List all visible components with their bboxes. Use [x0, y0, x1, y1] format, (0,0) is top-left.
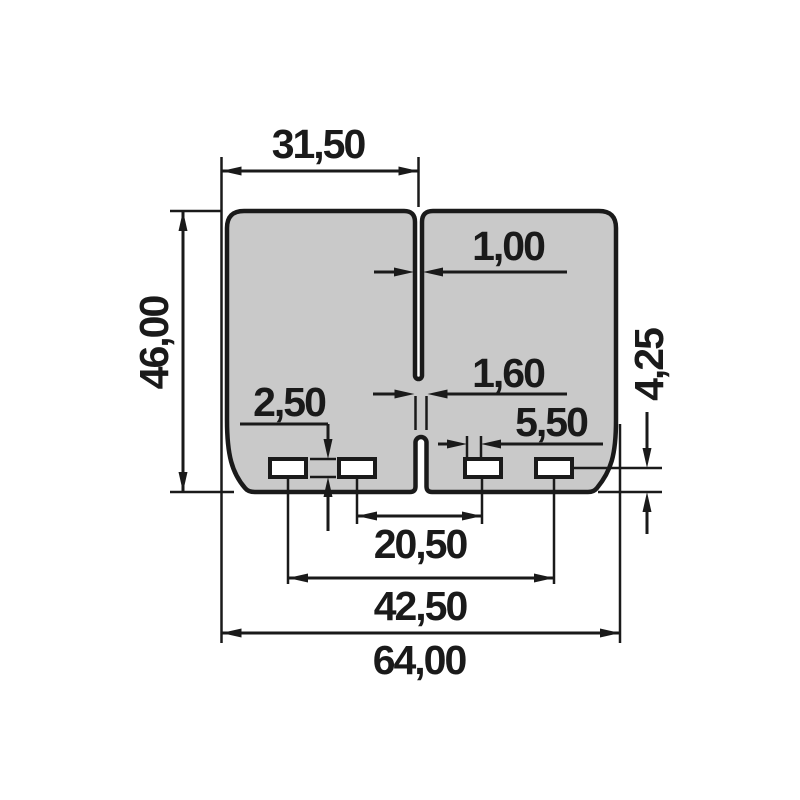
arrowhead — [222, 629, 242, 638]
dim-label-overall-width: 64,00 — [373, 637, 467, 683]
dim-label-petal-width: 31,50 — [272, 121, 366, 167]
arrowhead — [534, 574, 554, 583]
dim-label-inner-slot-spacing: 20,50 — [374, 521, 468, 567]
reed-petal-shape — [227, 211, 616, 492]
slot-hole-right-inner — [465, 459, 501, 477]
slot-hole-left-outer — [270, 459, 306, 477]
arrowhead — [222, 167, 242, 176]
dim-label-slit-width: 1,00 — [472, 223, 545, 269]
dim-label-center-gap-width: 1,60 — [472, 350, 545, 396]
arrowhead — [288, 574, 308, 583]
arrowhead — [643, 492, 652, 512]
arrowhead — [643, 448, 652, 468]
arrowhead — [179, 211, 188, 231]
arrowhead — [399, 167, 419, 176]
technical-drawing-canvas: 31,50 1,00 1,60 2,50 5,50 46,00 4,25 20,… — [0, 0, 800, 800]
arrowhead — [179, 472, 188, 492]
dim-label-slot-bottom-offset: 4,25 — [626, 328, 672, 401]
dim-label-outer-slot-spacing: 42,50 — [374, 583, 468, 629]
dim-label-slot-height: 2,50 — [253, 379, 326, 425]
arrowhead — [462, 512, 482, 521]
arrowhead — [357, 512, 377, 521]
reed-petal-dimension-drawing: 31,50 1,00 1,60 2,50 5,50 46,00 4,25 20,… — [0, 0, 800, 800]
slot-hole-left-inner — [339, 459, 375, 477]
dim-label-slot-width: 5,50 — [515, 399, 588, 445]
slot-hole-right-outer — [536, 459, 572, 477]
arrowhead — [600, 629, 620, 638]
dim-label-overall-height: 46,00 — [131, 296, 177, 390]
